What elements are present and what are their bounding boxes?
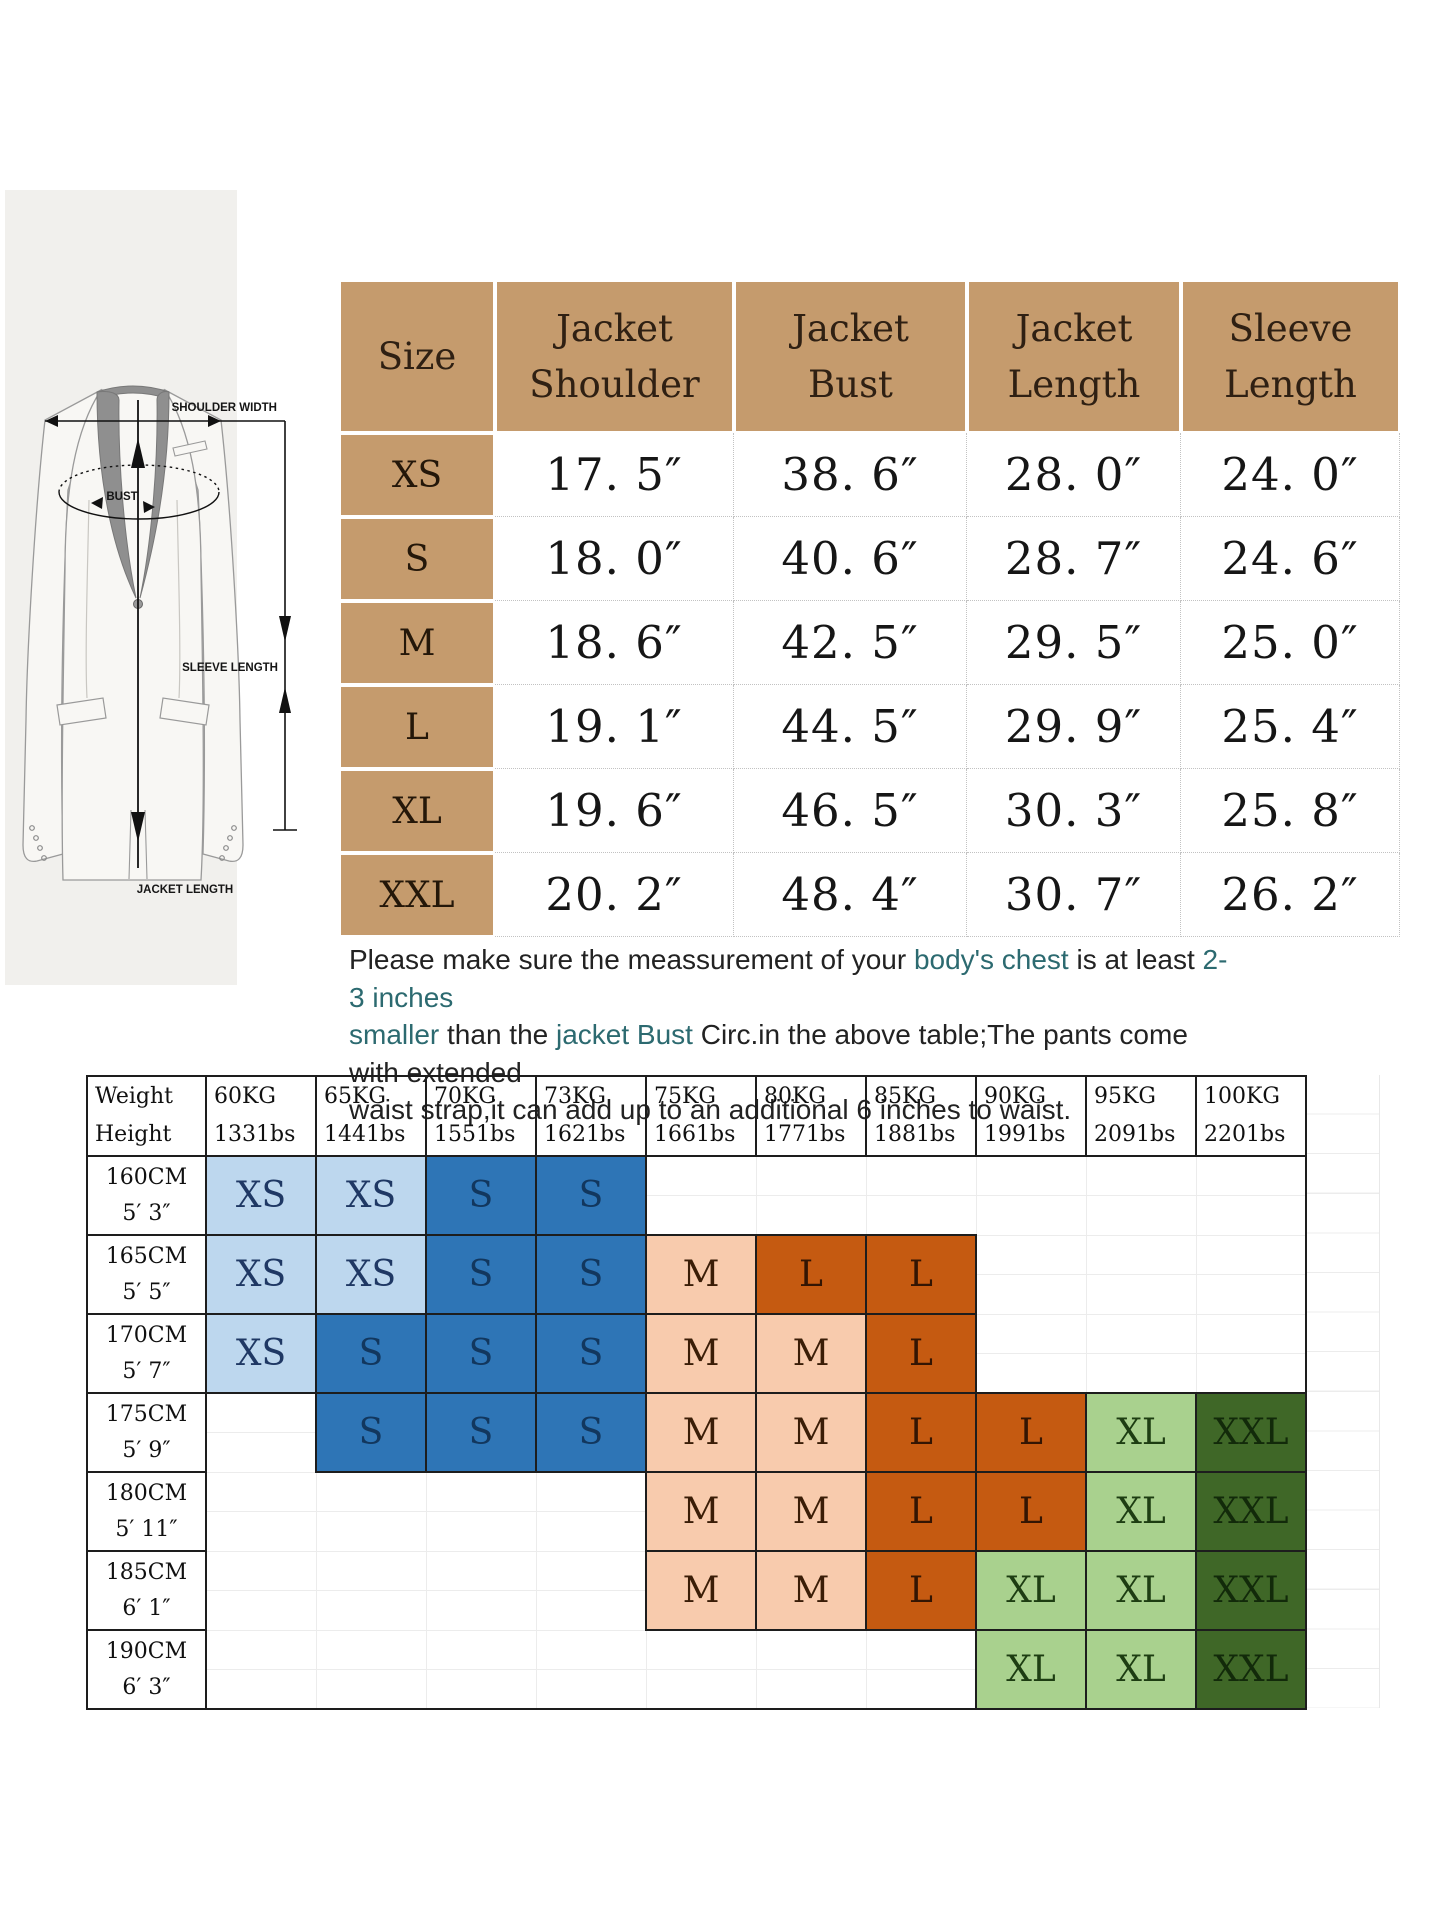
size-chart-page: { "colors":{ "tan":"#c59b6d","teal":"#2c… bbox=[0, 0, 1445, 1926]
fit-cell-l: L bbox=[866, 1551, 976, 1630]
fit-cell-empty bbox=[536, 1472, 646, 1551]
weight-header: 73KG1621bs bbox=[536, 1076, 646, 1156]
weight-kg: 80KG bbox=[757, 1078, 865, 1116]
weight-header: 85KG1881bs bbox=[866, 1076, 976, 1156]
fit-cell-xl: XL bbox=[1086, 1472, 1196, 1551]
weight-header: 70KG1551bs bbox=[426, 1076, 536, 1156]
fit-cell-empty bbox=[976, 1235, 1086, 1314]
weight-header: 80KG1771bs bbox=[756, 1076, 866, 1156]
size-label-cell: L bbox=[339, 685, 495, 769]
measurement-cell-shoulder: 17. 5″ bbox=[495, 433, 734, 517]
fit-cell-empty bbox=[206, 1472, 316, 1551]
weight-header: 60KG1331bs bbox=[206, 1076, 316, 1156]
fit-cell-xl: XL bbox=[976, 1551, 1086, 1630]
fit-cell-empty bbox=[756, 1630, 866, 1709]
fit-cell-xs: XS bbox=[316, 1156, 426, 1235]
height-cm: 170CM bbox=[88, 1318, 205, 1354]
size-table-header-sleeve: SleeveLength bbox=[1181, 280, 1400, 433]
height-label: 170CM5′ 7″ bbox=[87, 1314, 206, 1393]
header-line: Sleeve bbox=[1229, 301, 1353, 357]
measurement-cell-sleeve: 24. 6″ bbox=[1181, 517, 1400, 601]
height-imperial: 5′ 11″ bbox=[88, 1512, 205, 1548]
fit-cell-s: S bbox=[536, 1156, 646, 1235]
note-highlight: body's chest bbox=[914, 944, 1069, 975]
corner-height: Height bbox=[88, 1116, 205, 1154]
height-cm: 190CM bbox=[88, 1634, 205, 1670]
measurement-cell-bust: 40. 6″ bbox=[734, 517, 967, 601]
fit-cell-empty bbox=[426, 1472, 536, 1551]
height-cm: 165CM bbox=[88, 1239, 205, 1275]
height-cm: 160CM bbox=[88, 1160, 205, 1196]
fit-cell-l: L bbox=[976, 1472, 1086, 1551]
height-imperial: 5′ 3″ bbox=[88, 1196, 205, 1232]
weight-lbs: 1991bs bbox=[977, 1116, 1085, 1154]
weight-header: 100KG2201bs bbox=[1196, 1076, 1306, 1156]
fit-cell-s: S bbox=[536, 1235, 646, 1314]
measurement-cell-length: 28. 0″ bbox=[967, 433, 1181, 517]
fit-cell-s: S bbox=[316, 1314, 426, 1393]
fit-cell-empty bbox=[756, 1156, 866, 1235]
fit-cell-empty bbox=[206, 1630, 316, 1709]
fit-cell-l: L bbox=[976, 1393, 1086, 1472]
weight-header: 65KG1441bs bbox=[316, 1076, 426, 1156]
fit-cell-empty bbox=[536, 1551, 646, 1630]
weight-lbs: 1771bs bbox=[757, 1116, 865, 1154]
weight-lbs: 1661bs bbox=[647, 1116, 755, 1154]
measurement-cell-bust: 48. 4″ bbox=[734, 853, 967, 937]
fit-cell-m: M bbox=[646, 1551, 756, 1630]
fit-cell-empty bbox=[646, 1156, 756, 1235]
measurement-cell-shoulder: 19. 1″ bbox=[495, 685, 734, 769]
weight-kg: 70KG bbox=[427, 1078, 535, 1116]
height-label: 165CM5′ 5″ bbox=[87, 1235, 206, 1314]
spreadsheet-ghost-gridlines bbox=[1307, 1075, 1380, 1708]
sleeve-length-label: SLEEVE LENGTH bbox=[182, 662, 278, 674]
height-imperial: 5′ 5″ bbox=[88, 1275, 205, 1311]
fit-cell-empty bbox=[976, 1156, 1086, 1235]
size-table-header-size: Size bbox=[339, 280, 495, 433]
fit-cell-xs: XS bbox=[206, 1235, 316, 1314]
height-imperial: 6′ 1″ bbox=[88, 1591, 205, 1627]
note-text: is at least bbox=[1069, 944, 1203, 975]
fit-cell-empty bbox=[316, 1472, 426, 1551]
measurement-cell-shoulder: 19. 6″ bbox=[495, 769, 734, 853]
fit-cell-xxl: XXL bbox=[1196, 1472, 1306, 1551]
fit-cell-s: S bbox=[316, 1393, 426, 1472]
measurement-cell-length: 29. 5″ bbox=[967, 601, 1181, 685]
weight-lbs: 1881bs bbox=[867, 1116, 975, 1154]
fit-cell-l: L bbox=[866, 1314, 976, 1393]
header-line: Jacket bbox=[792, 301, 909, 357]
measurement-cell-length: 30. 3″ bbox=[967, 769, 1181, 853]
weight-header: 75KG1661bs bbox=[646, 1076, 756, 1156]
fit-cell-s: S bbox=[536, 1314, 646, 1393]
measurement-cell-bust: 38. 6″ bbox=[734, 433, 967, 517]
header-line: Size bbox=[378, 329, 457, 385]
measurement-cell-bust: 46. 5″ bbox=[734, 769, 967, 853]
weight-kg: 85KG bbox=[867, 1078, 975, 1116]
fit-cell-xxl: XXL bbox=[1196, 1630, 1306, 1709]
header-line: Jacket bbox=[556, 301, 673, 357]
weight-lbs: 1441bs bbox=[317, 1116, 425, 1154]
note-highlight: smaller bbox=[349, 1019, 439, 1050]
height-imperial: 5′ 9″ bbox=[88, 1433, 205, 1469]
fit-matrix-corner: WeightHeight bbox=[87, 1076, 206, 1156]
fit-matrix-row: 190CM6′ 3″XLXLXXL bbox=[87, 1630, 1306, 1709]
fit-cell-xl: XL bbox=[1086, 1393, 1196, 1472]
weight-kg: 90KG bbox=[977, 1078, 1085, 1116]
measurement-cell-shoulder: 18. 0″ bbox=[495, 517, 734, 601]
height-cm: 185CM bbox=[88, 1555, 205, 1591]
header-line: Length bbox=[1008, 357, 1141, 413]
weight-kg: 95KG bbox=[1087, 1078, 1195, 1116]
note-highlight: jacket Bust bbox=[556, 1019, 693, 1050]
measurement-cell-bust: 42. 5″ bbox=[734, 601, 967, 685]
measurement-cell-length: 28. 7″ bbox=[967, 517, 1181, 601]
measurement-cell-sleeve: 24. 0″ bbox=[1181, 433, 1400, 517]
fit-cell-xxl: XXL bbox=[1196, 1551, 1306, 1630]
measurement-cell-sleeve: 26. 2″ bbox=[1181, 853, 1400, 937]
fit-cell-m: M bbox=[756, 1393, 866, 1472]
fit-cell-xl: XL bbox=[1086, 1551, 1196, 1630]
fit-matrix-row: 160CM5′ 3″XSXSSS bbox=[87, 1156, 1306, 1235]
fit-cell-xs: XS bbox=[206, 1314, 316, 1393]
fit-cell-empty bbox=[1086, 1156, 1196, 1235]
weight-lbs: 2201bs bbox=[1197, 1116, 1305, 1154]
fit-cell-m: M bbox=[756, 1551, 866, 1630]
height-cm: 180CM bbox=[88, 1476, 205, 1512]
fit-matrix-row: 180CM5′ 11″MMLLXLXXL bbox=[87, 1472, 1306, 1551]
size-table-header-bust: JacketBust bbox=[734, 280, 967, 433]
fit-cell-empty bbox=[426, 1551, 536, 1630]
fit-cell-l: L bbox=[866, 1472, 976, 1551]
size-label-cell: S bbox=[339, 517, 495, 601]
height-label: 190CM6′ 3″ bbox=[87, 1630, 206, 1709]
fit-cell-l: L bbox=[866, 1235, 976, 1314]
fit-cell-empty bbox=[206, 1393, 316, 1472]
fit-matrix-row: 165CM5′ 5″XSXSSSMLL bbox=[87, 1235, 1306, 1314]
fit-cell-empty bbox=[206, 1551, 316, 1630]
fit-cell-xl: XL bbox=[976, 1630, 1086, 1709]
fit-cell-s: S bbox=[536, 1393, 646, 1472]
note-text: Please make sure the meassurement of you… bbox=[349, 944, 914, 975]
weight-kg: 100KG bbox=[1197, 1078, 1305, 1116]
fit-cell-xl: XL bbox=[1086, 1630, 1196, 1709]
weight-kg: 65KG bbox=[317, 1078, 425, 1116]
weight-kg: 75KG bbox=[647, 1078, 755, 1116]
height-imperial: 5′ 7″ bbox=[88, 1354, 205, 1390]
fit-cell-empty bbox=[316, 1551, 426, 1630]
fit-cell-m: M bbox=[646, 1393, 756, 1472]
measurement-cell-sleeve: 25. 4″ bbox=[1181, 685, 1400, 769]
fit-cell-empty bbox=[1196, 1235, 1306, 1314]
fit-cell-m: M bbox=[756, 1472, 866, 1551]
fit-cell-empty bbox=[866, 1630, 976, 1709]
fit-cell-m: M bbox=[646, 1235, 756, 1314]
weight-header: 95KG2091bs bbox=[1086, 1076, 1196, 1156]
size-label-cell: XS bbox=[339, 433, 495, 517]
jacket-length-label: JACKET LENGTH bbox=[137, 884, 233, 896]
measurement-cell-length: 29. 9″ bbox=[967, 685, 1181, 769]
fit-cell-s: S bbox=[426, 1314, 536, 1393]
bust-label: BUST bbox=[106, 491, 137, 503]
fit-cell-l: L bbox=[866, 1393, 976, 1472]
header-line: Bust bbox=[808, 357, 893, 413]
height-imperial: 6′ 3″ bbox=[88, 1670, 205, 1706]
jacket-size-table: SizeJacketShoulderJacketBustJacketLength… bbox=[339, 280, 1400, 937]
note-text: than the bbox=[439, 1019, 556, 1050]
fit-matrix-body: WeightHeight60KG1331bs65KG1441bs70KG1551… bbox=[87, 1076, 1306, 1709]
fit-cell-m: M bbox=[646, 1314, 756, 1393]
fit-matrix-row: 185CM6′ 1″MMLXLXLXXL bbox=[87, 1551, 1306, 1630]
measurement-cell-sleeve: 25. 8″ bbox=[1181, 769, 1400, 853]
fit-cell-m: M bbox=[646, 1472, 756, 1551]
fit-cell-s: S bbox=[426, 1156, 536, 1235]
fit-cell-xs: XS bbox=[206, 1156, 316, 1235]
fit-cell-empty bbox=[1086, 1235, 1196, 1314]
fit-cell-empty bbox=[1196, 1156, 1306, 1235]
size-label-cell: XL bbox=[339, 769, 495, 853]
weight-header: 90KG1991bs bbox=[976, 1076, 1086, 1156]
fit-cell-xxl: XXL bbox=[1196, 1393, 1306, 1472]
measurement-cell-shoulder: 18. 6″ bbox=[495, 601, 734, 685]
measurement-cell-bust: 44. 5″ bbox=[734, 685, 967, 769]
fit-cell-empty bbox=[1086, 1314, 1196, 1393]
measurement-cell-shoulder: 20. 2″ bbox=[495, 853, 734, 937]
fit-cell-l: L bbox=[756, 1235, 866, 1314]
measurement-cell-sleeve: 25. 0″ bbox=[1181, 601, 1400, 685]
measurement-cell-length: 30. 7″ bbox=[967, 853, 1181, 937]
fit-cell-empty bbox=[976, 1314, 1086, 1393]
header-line: Jacket bbox=[1016, 301, 1133, 357]
fit-cell-empty bbox=[866, 1156, 976, 1235]
fit-matrix-row: 175CM5′ 9″SSSMMLLXLXXL bbox=[87, 1393, 1306, 1472]
note-line: Please make sure the meassurement of you… bbox=[349, 941, 1229, 1016]
height-label: 160CM5′ 3″ bbox=[87, 1156, 206, 1235]
size-table-header-shoulder: JacketShoulder bbox=[495, 280, 734, 433]
fit-cell-xs: XS bbox=[316, 1235, 426, 1314]
size-label-cell: M bbox=[339, 601, 495, 685]
weight-lbs: 2091bs bbox=[1087, 1116, 1195, 1154]
weight-kg: 73KG bbox=[537, 1078, 645, 1116]
fit-cell-empty bbox=[426, 1630, 536, 1709]
weight-kg: 60KG bbox=[207, 1078, 315, 1116]
fit-matrix-header-row: WeightHeight60KG1331bs65KG1441bs70KG1551… bbox=[87, 1076, 1306, 1156]
weight-lbs: 1621bs bbox=[537, 1116, 645, 1154]
fit-cell-s: S bbox=[426, 1235, 536, 1314]
height-label: 180CM5′ 11″ bbox=[87, 1472, 206, 1551]
sleeve-length-arrow bbox=[273, 421, 297, 830]
fit-cell-empty bbox=[646, 1630, 756, 1709]
fit-cell-m: M bbox=[756, 1314, 866, 1393]
shoulder-width-label: SHOULDER WIDTH bbox=[172, 402, 277, 414]
weight-lbs: 1551bs bbox=[427, 1116, 535, 1154]
height-cm: 175CM bbox=[88, 1397, 205, 1433]
size-label-cell: XXL bbox=[339, 853, 495, 937]
jacket-measurement-diagram: SHOULDER WIDTH BUST SLEEVE LENGTH JACKET… bbox=[5, 190, 300, 985]
height-label: 185CM6′ 1″ bbox=[87, 1551, 206, 1630]
header-line: Length bbox=[1224, 357, 1357, 413]
weight-lbs: 1331bs bbox=[207, 1116, 315, 1154]
height-label: 175CM5′ 9″ bbox=[87, 1393, 206, 1472]
fit-cell-empty bbox=[1196, 1314, 1306, 1393]
corner-weight: Weight bbox=[88, 1078, 205, 1116]
header-line: Shoulder bbox=[529, 357, 699, 413]
fit-matrix-row: 170CM5′ 7″XSSSSMML bbox=[87, 1314, 1306, 1393]
fit-cell-empty bbox=[316, 1630, 426, 1709]
fit-cell-empty bbox=[536, 1630, 646, 1709]
height-weight-fit-matrix: WeightHeight60KG1331bs65KG1441bs70KG1551… bbox=[86, 1075, 1307, 1710]
size-table-header-length: JacketLength bbox=[967, 280, 1181, 433]
fit-cell-s: S bbox=[426, 1393, 536, 1472]
